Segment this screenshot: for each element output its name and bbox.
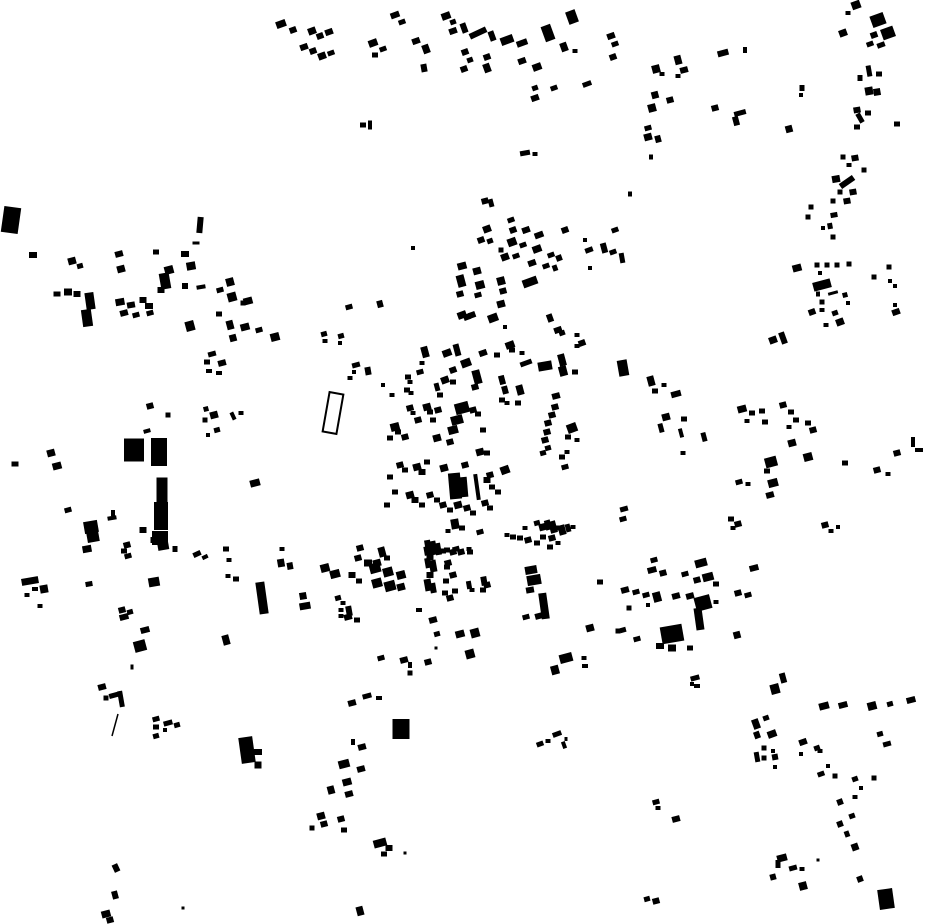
building-footprint (866, 65, 873, 77)
building-footprint (873, 466, 881, 474)
building-footprint (817, 859, 820, 862)
building-footprint (435, 647, 438, 650)
building-footprint (798, 738, 808, 746)
building-footprint (460, 358, 472, 369)
building-footprint (734, 589, 742, 597)
building-footprint (186, 261, 196, 270)
building-footprint (542, 262, 550, 269)
building-footprint (767, 478, 779, 488)
building-footprint (337, 815, 345, 823)
building-footprint (496, 300, 506, 309)
building-footprint (818, 749, 823, 753)
building-footprint (21, 576, 39, 586)
building-footprint (427, 572, 434, 578)
building-footprint (524, 565, 537, 575)
building-footprint (114, 250, 123, 258)
building-footprint (552, 264, 559, 271)
building-footprint (390, 393, 395, 397)
building-footprint (619, 506, 628, 513)
building-footprint (836, 820, 844, 828)
building-footprint (426, 491, 434, 499)
building-footprint (38, 604, 43, 608)
building-footprint (864, 86, 873, 95)
building-footprint (751, 718, 761, 730)
path-line (112, 714, 118, 736)
building-footprint (666, 96, 674, 104)
building-footprint (152, 716, 160, 723)
building-footprint (411, 246, 415, 250)
building-footprint (182, 283, 188, 289)
building-footprint-outline (323, 392, 344, 434)
building-footprint (115, 298, 125, 306)
building-footprint (1, 206, 21, 234)
building-footprint (652, 389, 658, 394)
building-footprint (478, 349, 488, 357)
building-footprint (660, 624, 685, 645)
building-footprint (348, 376, 353, 380)
building-footprint (163, 728, 167, 732)
building-footprint (550, 665, 560, 676)
building-footprint (428, 616, 437, 624)
building-footprint (12, 462, 19, 467)
building-footprint (778, 331, 788, 344)
building-footprint (853, 795, 858, 799)
building-footprint (467, 550, 473, 555)
building-footprint (320, 563, 331, 573)
building-footprint (835, 317, 845, 326)
building-footprint (820, 300, 825, 305)
building-footprint (106, 916, 114, 924)
building-footprint (647, 566, 657, 574)
building-footprint (494, 353, 500, 358)
building-footprint (408, 380, 413, 384)
building-footprint (869, 12, 886, 28)
building-footprint (356, 765, 365, 773)
building-footprint (381, 852, 387, 857)
building-footprint (209, 411, 219, 420)
building-footprint (831, 235, 836, 240)
building-footprint (255, 327, 263, 334)
building-footprints-layer (1, 0, 923, 924)
building-footprint (360, 123, 366, 128)
building-footprint (444, 565, 450, 570)
building-footprint (690, 682, 694, 686)
building-footprint (644, 125, 652, 132)
building-footprint (371, 577, 383, 588)
building-footprint (475, 412, 481, 417)
building-footprint (772, 754, 779, 761)
building-footprint (337, 333, 344, 339)
building-footprint (654, 135, 662, 143)
building-footprint (107, 515, 117, 521)
building-footprint (833, 774, 838, 779)
building-footprint (737, 404, 748, 413)
building-footprint (838, 701, 848, 709)
building-footprint (85, 581, 93, 587)
building-footprint (649, 155, 653, 160)
building-footprint (749, 411, 755, 416)
building-footprint (536, 740, 544, 747)
building-footprint (487, 313, 499, 324)
building-footprint (124, 439, 144, 462)
building-footprint (203, 406, 209, 412)
building-footprint (457, 261, 468, 270)
building-footprint (888, 279, 892, 283)
building-footprint (459, 22, 468, 33)
building-footprint (854, 125, 860, 130)
building-footprint (372, 53, 378, 58)
building-footprint (732, 116, 740, 126)
building-footprint (561, 226, 570, 234)
building-footprint (181, 251, 189, 257)
building-footprint (544, 419, 552, 427)
building-footprint (846, 301, 850, 305)
building-footprint (456, 290, 464, 298)
building-footprint (414, 416, 422, 424)
building-footprint (338, 759, 351, 770)
building-footprint (803, 452, 814, 462)
building-footprint (216, 371, 222, 375)
building-footprint (196, 284, 206, 290)
building-footprint (474, 292, 482, 299)
building-footprint (117, 691, 125, 708)
building-footprint (694, 558, 708, 569)
building-footprint (229, 334, 238, 343)
building-footprint (651, 91, 660, 100)
building-footprint (859, 786, 863, 790)
building-footprint (398, 18, 406, 25)
building-footprint (681, 417, 687, 422)
building-footprint (158, 287, 165, 293)
building-footprint (449, 366, 458, 374)
building-footprint (489, 485, 495, 490)
building-footprint (575, 344, 580, 348)
building-footprint (404, 852, 407, 855)
building-footprint (323, 339, 328, 343)
building-footprint (364, 367, 371, 376)
building-footprint (872, 275, 877, 280)
building-footprint (609, 53, 618, 61)
building-footprint (411, 37, 421, 45)
building-footprint (243, 296, 254, 305)
building-footprint (446, 438, 454, 446)
building-footprint (893, 303, 897, 307)
building-footprint (820, 308, 825, 312)
building-footprint (779, 401, 787, 409)
building-footprint (143, 428, 151, 434)
building-footprint (846, 11, 851, 15)
building-footprint (376, 300, 384, 308)
building-footprint (434, 382, 441, 391)
building-footprint (140, 626, 150, 634)
building-footprint (29, 252, 37, 258)
building-footprint (847, 163, 852, 167)
building-footprint (809, 426, 817, 434)
building-footprint (831, 199, 836, 204)
building-footprint (548, 534, 556, 542)
building-footprint (800, 867, 805, 871)
building-footprint (866, 40, 874, 47)
building-footprint (193, 242, 200, 245)
building-footprint (711, 104, 719, 112)
building-footprint (584, 246, 593, 253)
building-footprint (344, 790, 353, 798)
building-footprint (520, 150, 531, 157)
building-footprint (762, 746, 767, 751)
building-footprint (818, 271, 822, 275)
building-footprint (656, 643, 664, 649)
building-footprint (776, 860, 781, 868)
building-footprint (434, 498, 440, 503)
building-footprint (808, 308, 817, 316)
building-footprint (223, 547, 229, 552)
building-footprint (280, 547, 285, 551)
building-footprint (469, 26, 488, 39)
building-footprint (239, 411, 244, 415)
building-footprint (307, 26, 317, 35)
building-footprint (495, 490, 501, 495)
building-footprint (835, 263, 840, 268)
building-footprint (384, 503, 390, 508)
building-footprint (498, 375, 506, 385)
building-footprint (396, 583, 406, 592)
building-footprint (517, 57, 527, 65)
building-footprint (471, 369, 482, 385)
building-footprint (206, 369, 212, 373)
building-footprint (693, 576, 701, 584)
building-footprint (408, 671, 413, 676)
building-footprint (826, 764, 830, 768)
building-footprint (515, 401, 521, 406)
building-footprint (617, 359, 630, 376)
building-footprint (377, 655, 385, 662)
building-footprint (546, 739, 551, 743)
building-footprint (146, 402, 154, 410)
building-footprint (240, 322, 251, 331)
building-footprint (505, 401, 510, 405)
building-footprint (646, 603, 650, 607)
building-footprint (643, 133, 653, 142)
building-footprint (182, 907, 185, 910)
building-footprint (450, 380, 456, 385)
building-footprint (475, 280, 486, 290)
building-footprint (424, 460, 430, 465)
building-footprint (582, 656, 587, 660)
building-footprint (456, 274, 467, 288)
building-footprint (309, 47, 318, 55)
building-footprint (765, 491, 774, 499)
building-footprint (173, 546, 178, 552)
building-footprint (405, 375, 411, 380)
building-footprint (201, 554, 208, 560)
building-footprint (383, 580, 396, 593)
building-footprint (406, 404, 414, 412)
building-footprint (289, 26, 298, 34)
building-footprint (387, 436, 393, 441)
building-footprint (111, 890, 119, 899)
building-footprint (316, 812, 326, 821)
building-footprint (798, 881, 808, 891)
building-footprint (355, 906, 364, 917)
building-footprint (39, 584, 48, 593)
building-footprint (475, 448, 485, 457)
building-footprint (817, 770, 825, 777)
building-footprint (310, 826, 315, 831)
building-footprint (376, 696, 382, 700)
building-footprint (387, 475, 393, 480)
building-footprint (753, 731, 761, 740)
building-footprint (836, 525, 840, 529)
building-footprint (815, 263, 820, 268)
building-footprint (74, 291, 81, 297)
building-footprint (225, 320, 234, 331)
building-footprint (788, 410, 794, 415)
building-footprint (334, 595, 341, 601)
building-footprint (452, 589, 458, 594)
building-footprint (530, 94, 540, 102)
building-footprint (499, 248, 504, 253)
building-footprint (685, 592, 694, 600)
building-footprint (662, 383, 667, 387)
building-footprint (571, 525, 576, 529)
building-footprint (847, 262, 852, 267)
building-footprint (327, 49, 335, 56)
building-footprint (338, 341, 342, 345)
building-footprint (229, 412, 236, 421)
building-footprint (838, 190, 843, 195)
building-footprint (316, 32, 325, 40)
building-footprint (64, 289, 72, 296)
building-footprint (192, 550, 201, 558)
building-footprint (146, 310, 154, 317)
building-footprint (506, 237, 517, 248)
building-footprint (238, 736, 255, 764)
building-footprint (277, 558, 285, 567)
building-footprint (841, 155, 846, 160)
building-footprint (700, 432, 707, 442)
building-footprint (611, 226, 619, 233)
building-footprint (145, 303, 153, 309)
building-footprint (806, 215, 811, 220)
building-footprint (676, 74, 681, 78)
building-footprint (516, 38, 528, 47)
building-footprint (582, 80, 592, 88)
building-footprint (351, 739, 355, 745)
building-footprint (768, 335, 778, 344)
building-footprint (519, 241, 527, 248)
building-footprint (558, 365, 568, 377)
building-footprint (345, 304, 353, 311)
building-footprint (544, 445, 551, 451)
building-footprint (111, 510, 115, 516)
building-footprint (487, 506, 493, 511)
building-footprint (46, 449, 56, 458)
building-footprint (356, 544, 364, 552)
building-footprint (433, 631, 440, 637)
building-footprint (764, 469, 770, 474)
building-footprint (420, 361, 425, 365)
building-footprint (771, 749, 775, 753)
building-footprint (656, 806, 661, 810)
building-footprint (787, 439, 797, 448)
building-footprint (886, 701, 893, 707)
building-footprint (204, 360, 210, 365)
building-footprint (673, 55, 682, 66)
building-footprint (566, 422, 578, 434)
building-footprint (419, 469, 426, 475)
footprint-mask-svg (0, 0, 930, 924)
building-footprint (876, 41, 885, 48)
building-footprint (843, 197, 851, 204)
building-footprint (647, 103, 657, 113)
building-footprint (255, 762, 262, 769)
building-footprint (872, 776, 877, 781)
building-footprint (420, 346, 430, 358)
building-footprint (217, 359, 226, 367)
building-footprint (873, 88, 881, 96)
building-footprint (454, 401, 470, 415)
building-footprint (166, 413, 171, 418)
building-footprint (565, 450, 570, 454)
building-footprint (534, 231, 545, 240)
building-footprint (670, 390, 681, 398)
building-footprint (225, 277, 235, 287)
building-footprint (412, 497, 419, 503)
building-footprint (551, 392, 560, 400)
building-footprint (206, 433, 210, 437)
building-footprint (207, 351, 216, 358)
building-footprint (531, 85, 538, 92)
building-footprint (551, 403, 559, 411)
building-footprint (565, 435, 571, 440)
building-footprint (254, 749, 262, 755)
building-footprint (694, 684, 700, 688)
building-footprint (386, 845, 393, 851)
building-footprint (652, 799, 660, 806)
building-footprint (484, 477, 491, 483)
building-footprint (687, 646, 693, 651)
building-footprint (799, 752, 803, 756)
building-footprint (483, 53, 492, 61)
building-footprint (532, 244, 543, 254)
building-footprint (196, 217, 203, 233)
building-footprint (767, 729, 778, 739)
building-footprint (836, 798, 844, 806)
building-footprint (609, 248, 617, 255)
building-footprint (520, 351, 525, 355)
building-footprint (509, 226, 518, 234)
building-footprint (118, 606, 126, 614)
building-footprint (827, 223, 833, 230)
building-footprint (499, 287, 507, 295)
building-footprint (793, 418, 799, 423)
building-footprint (119, 613, 129, 621)
building-footprint (390, 11, 401, 20)
building-footprint (887, 265, 892, 270)
building-footprint (559, 652, 574, 664)
building-footprint (450, 414, 464, 426)
building-footprint (546, 313, 554, 323)
building-footprint (67, 257, 77, 266)
building-footprint (379, 45, 387, 52)
building-footprint (286, 562, 293, 570)
building-footprint (628, 192, 632, 197)
building-footprint (870, 31, 879, 39)
building-footprint (733, 631, 742, 640)
building-footprint (439, 464, 449, 473)
building-footprint (349, 572, 356, 578)
building-footprint (652, 591, 662, 603)
